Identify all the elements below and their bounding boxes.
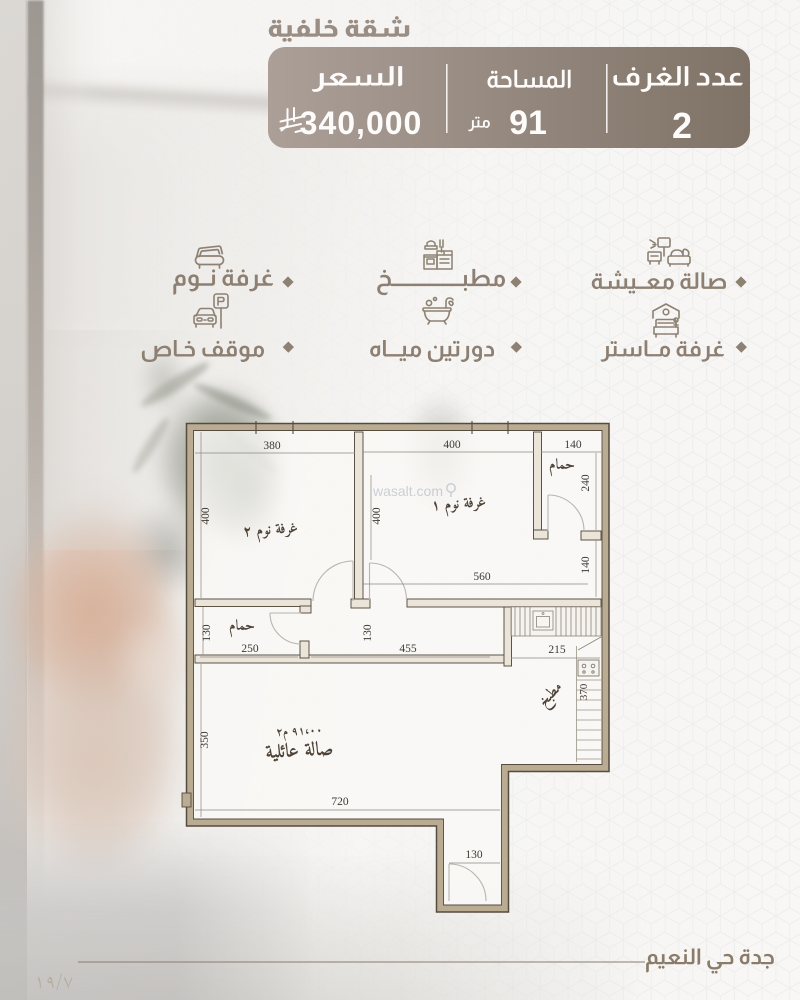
svg-text:340,000: 340,000 (300, 105, 423, 141)
svg-text:2: 2 (672, 105, 692, 146)
svg-text:380: 380 (263, 440, 281, 452)
svg-text:130: 130 (465, 849, 483, 861)
svg-text:140: 140 (564, 439, 582, 451)
svg-text:wasalt.com: wasalt.com (372, 483, 443, 499)
svg-text:240: 240 (580, 474, 592, 492)
svg-text:215: 215 (548, 644, 566, 656)
svg-text:140: 140 (580, 556, 592, 574)
svg-text:455: 455 (399, 643, 417, 655)
svg-text:350: 350 (199, 731, 211, 749)
svg-text:370: 370 (578, 683, 590, 700)
svg-text:91: 91 (509, 104, 547, 142)
svg-text:250: 250 (241, 643, 259, 655)
svg-text:400: 400 (443, 439, 461, 451)
svg-text:400: 400 (200, 507, 212, 525)
svg-text:720: 720 (331, 796, 349, 808)
svg-text:400: 400 (371, 507, 383, 525)
svg-text:130: 130 (362, 624, 374, 642)
svg-text:130: 130 (201, 624, 213, 642)
svg-text:560: 560 (473, 571, 491, 583)
